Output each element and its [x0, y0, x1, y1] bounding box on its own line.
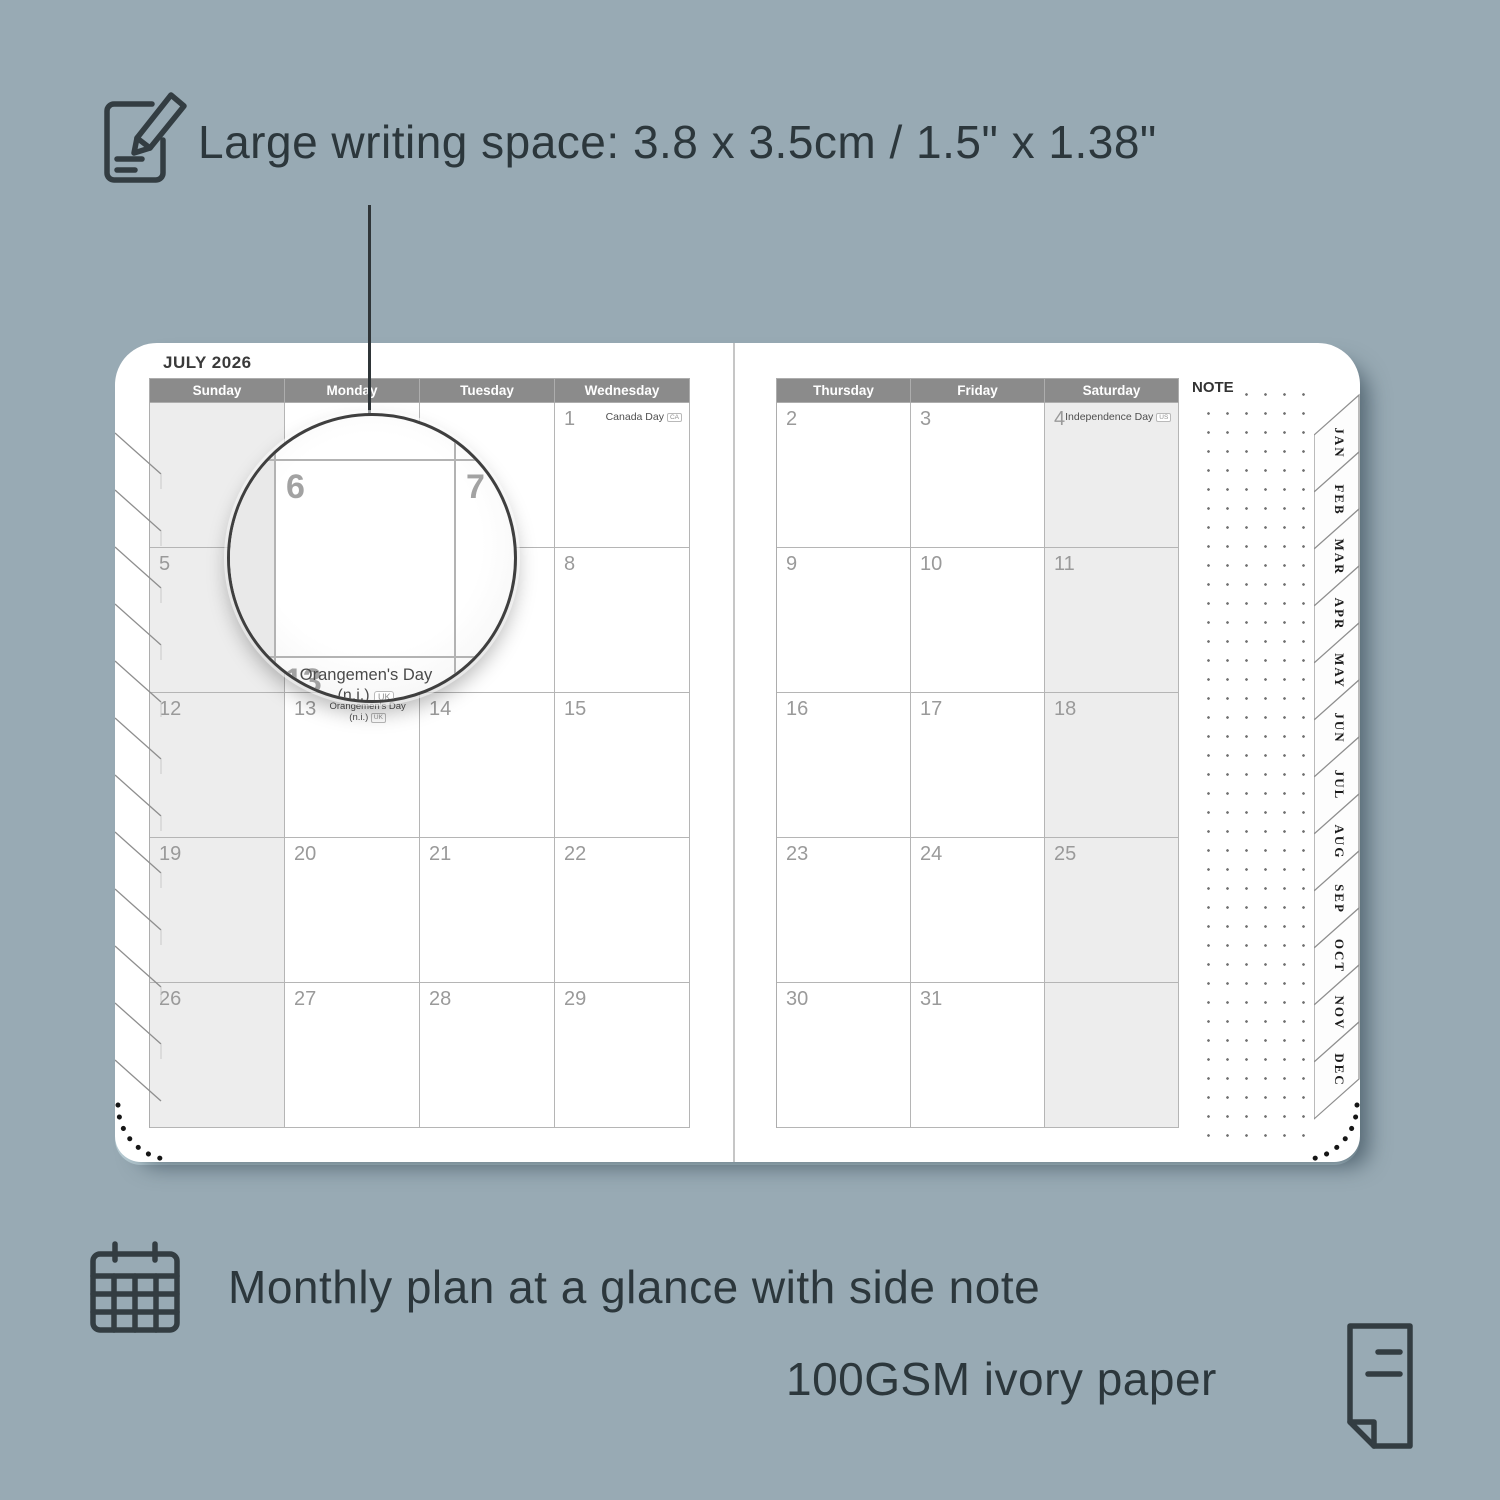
top-annotation-text: Large writing space: 3.8 x 3.5cm / 1.5" …	[198, 115, 1157, 169]
magnified-gridline	[230, 656, 517, 658]
bottom-right-annotation-text: 100GSM ivory paper	[786, 1352, 1217, 1406]
bottom-left-annotation-text: Monthly plan at a glance with side note	[228, 1260, 1040, 1314]
product-image: Large writing space: 3.8 x 3.5cm / 1.5" …	[0, 0, 1500, 1500]
pointer-line	[368, 205, 371, 420]
magnified-day-7: 7	[466, 468, 485, 507]
magnified-gridline	[230, 459, 517, 461]
notepad-pencil-icon	[92, 78, 192, 188]
paper-folded-corner-icon	[1340, 1320, 1420, 1452]
note-label: NOTE	[1192, 379, 1239, 396]
magnified-day-6: 6	[286, 468, 305, 507]
magnified-country-badge: UK	[374, 691, 395, 703]
magnifier-circle: 6 7 13 Orangemen's Day (n.i.) UK	[227, 413, 517, 703]
magnified-holiday-name: Orangemen's Day	[276, 666, 456, 685]
calendar-grid-icon	[85, 1240, 185, 1336]
